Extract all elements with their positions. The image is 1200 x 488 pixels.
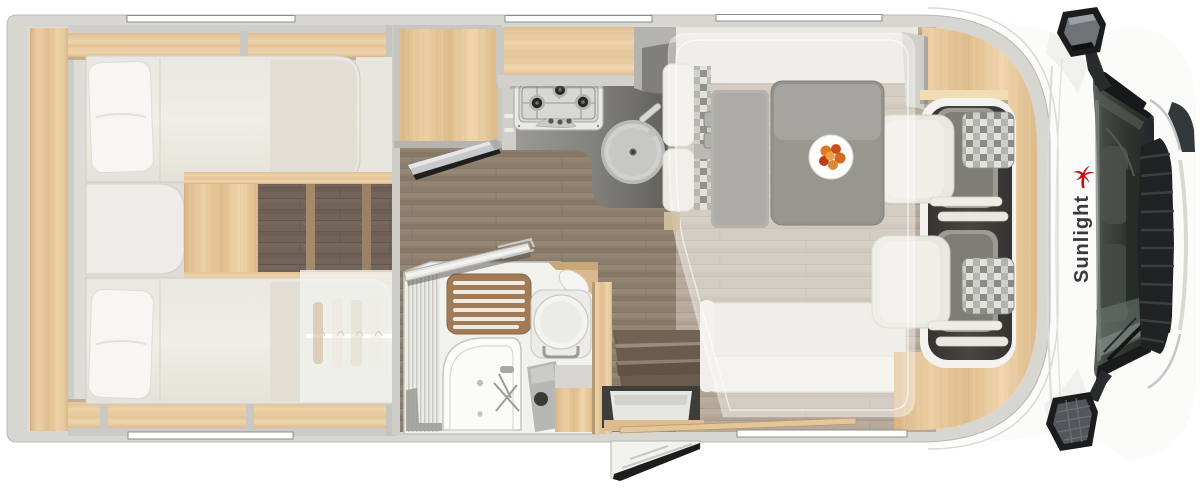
svg-text:Sunlight: Sunlight	[1071, 195, 1093, 283]
